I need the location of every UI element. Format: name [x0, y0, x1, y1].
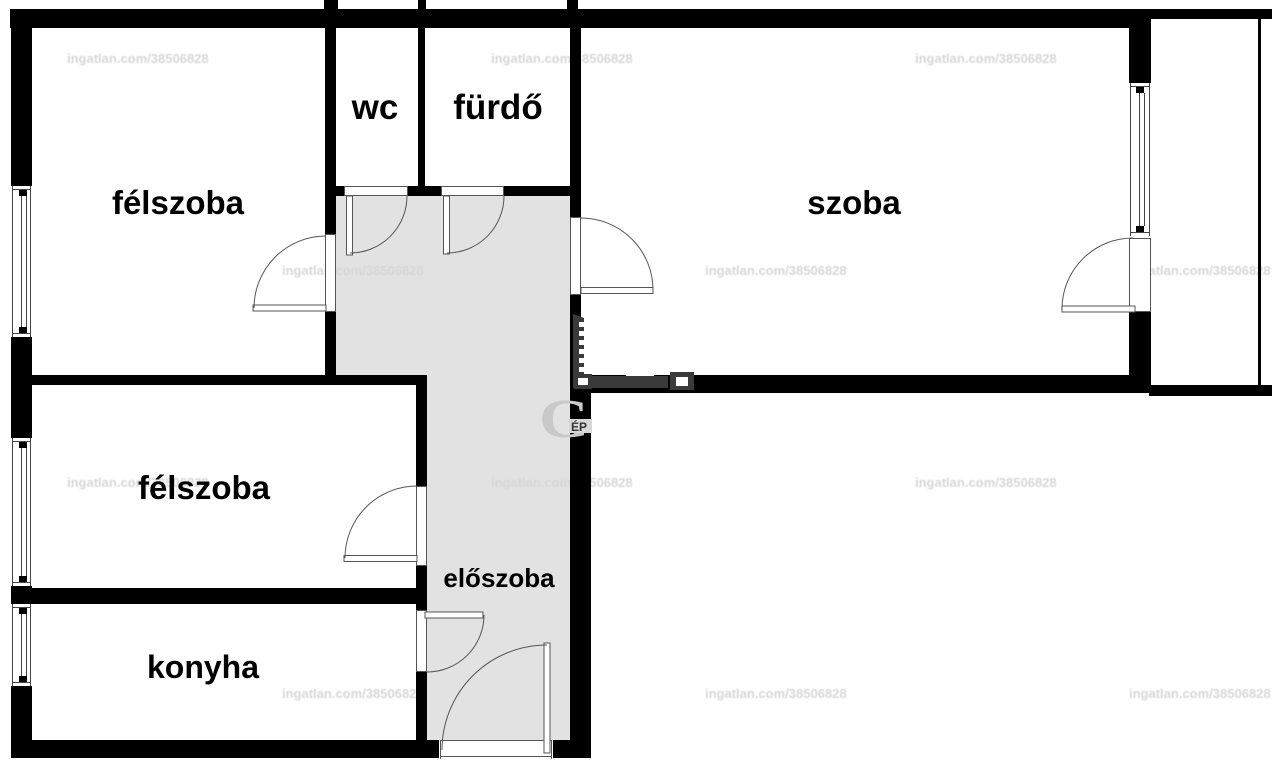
svg-text:ingatlan.com/38506828: ingatlan.com/38506828 [915, 51, 1057, 66]
svg-text:konyha: konyha [147, 649, 259, 685]
svg-text:wc: wc [351, 88, 399, 127]
svg-text:félszoba: félszoba [112, 184, 245, 221]
svg-text:ingatlan.com/38506828: ingatlan.com/38506828 [282, 686, 424, 701]
svg-text:ingatlan.com/38506828: ingatlan.com/38506828 [705, 686, 847, 701]
svg-text:G: G [539, 388, 590, 449]
svg-text:ingatlan.com/38506828: ingatlan.com/38506828 [67, 51, 209, 66]
svg-text:ingatlan.com/38506828: ingatlan.com/38506828 [705, 263, 847, 278]
svg-text:ingatlan.com/38506828: ingatlan.com/38506828 [915, 475, 1057, 490]
svg-text:ÉP: ÉP [571, 419, 587, 434]
svg-text:előszoba: előszoba [443, 563, 555, 593]
svg-text:szoba: szoba [807, 184, 901, 221]
svg-text:ingatlan.com/38506828: ingatlan.com/38506828 [1129, 686, 1271, 701]
svg-text:ingatlan.com/38506828: ingatlan.com/38506828 [491, 51, 633, 66]
svg-text:fürdő: fürdő [453, 88, 542, 127]
svg-text:ingatlan.com/38506828: ingatlan.com/38506828 [491, 475, 633, 490]
svg-text:félszoba: félszoba [138, 469, 271, 506]
svg-text:ingatlan.com/38506828: ingatlan.com/38506828 [282, 263, 424, 278]
